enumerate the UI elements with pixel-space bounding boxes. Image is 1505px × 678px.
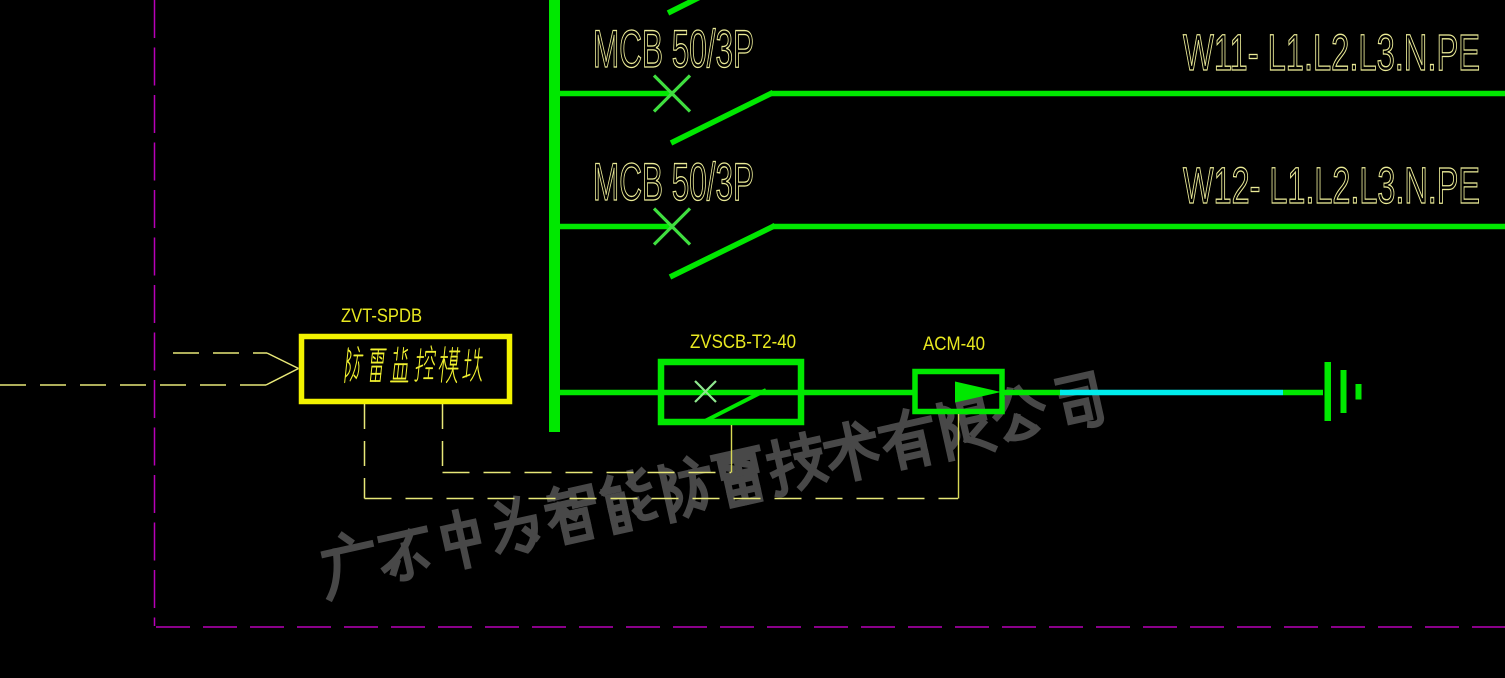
svg-text:W11- L1.L2.L3.N.PE: W11- L1.L2.L3.N.PE bbox=[1183, 24, 1480, 81]
svg-text:ZVSCB-T2-40: ZVSCB-T2-40 bbox=[690, 332, 796, 353]
svg-text:MCB 50/3P: MCB 50/3P bbox=[593, 20, 754, 79]
svg-text:ZVT-SPDB: ZVT-SPDB bbox=[341, 306, 422, 327]
svg-text:W12- L1.L2.L3.N.PE: W12- L1.L2.L3.N.PE bbox=[1183, 157, 1480, 214]
svg-text:ACM-40: ACM-40 bbox=[923, 334, 985, 355]
svg-text:MCB 50/3P: MCB 50/3P bbox=[593, 153, 754, 212]
